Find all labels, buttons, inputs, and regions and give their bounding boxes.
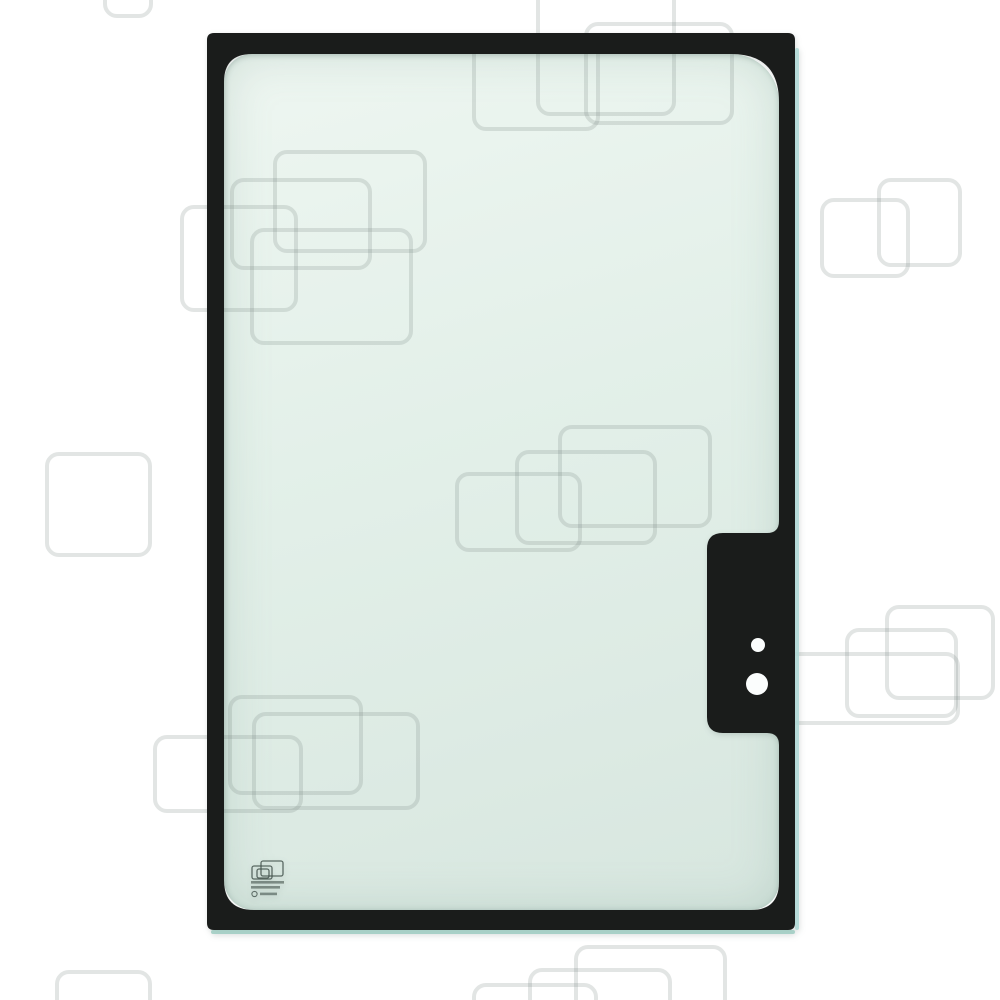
stamp-text-line: [251, 881, 284, 884]
product-photo-canvas: [0, 0, 1000, 1000]
stamp-text-line: [251, 886, 280, 889]
glass-stamp: [251, 861, 284, 897]
stamp-logo-rect: [257, 869, 269, 878]
glass-edge-highlight-right: [795, 48, 799, 930]
bolt-hole-large: [746, 673, 768, 695]
glass-frame-overlay: [0, 0, 1000, 1000]
bolt-hole-small: [751, 638, 765, 652]
stamp-text-line: [260, 893, 277, 896]
glass-edge-highlight-bottom: [211, 930, 795, 934]
stamp-certification-mark: [252, 891, 257, 896]
mounting-tab: [707, 521, 795, 745]
frit-border: [207, 33, 795, 930]
